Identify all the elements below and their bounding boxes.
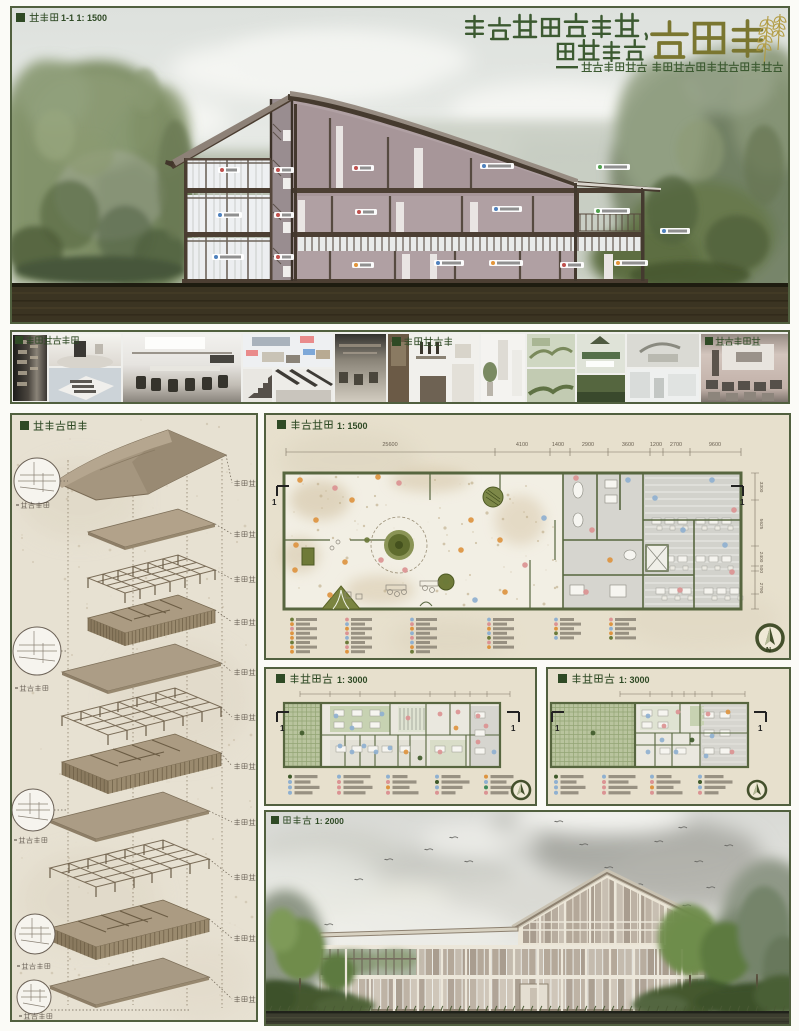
svg-text:1-1 1: 1500: 1-1 1: 1500: [61, 13, 107, 23]
svg-text:5625: 5625: [758, 519, 764, 530]
svg-text:1: 3000: 1: 3000: [619, 675, 650, 685]
svg-text:2400: 2400: [758, 552, 764, 563]
svg-text:1: 1: [280, 724, 285, 733]
svg-text:1: 1: [511, 724, 516, 733]
svg-text:500: 500: [758, 565, 764, 573]
svg-text:1: 1: [758, 724, 763, 733]
svg-text:2790: 2790: [758, 583, 764, 594]
svg-text:1400: 1400: [552, 442, 564, 448]
svg-text:9600: 9600: [709, 442, 721, 448]
svg-text:1: 1: [555, 724, 560, 733]
svg-text:N: N: [766, 647, 771, 654]
svg-text:1: 2000: 1: 2000: [315, 816, 344, 826]
svg-text:1: 1500: 1: 1500: [337, 421, 368, 431]
svg-text:3300: 3300: [758, 482, 764, 493]
svg-text:3600: 3600: [622, 442, 634, 448]
svg-text:1: 3000: 1: 3000: [337, 675, 368, 685]
svg-text:2900: 2900: [582, 442, 594, 448]
svg-text:1200: 1200: [650, 442, 662, 448]
svg-text:2700: 2700: [670, 442, 682, 448]
svg-text:4100: 4100: [516, 442, 528, 448]
svg-text:1: 1: [272, 498, 277, 507]
svg-text:25600: 25600: [382, 442, 397, 448]
svg-text:1: 1: [740, 498, 745, 507]
